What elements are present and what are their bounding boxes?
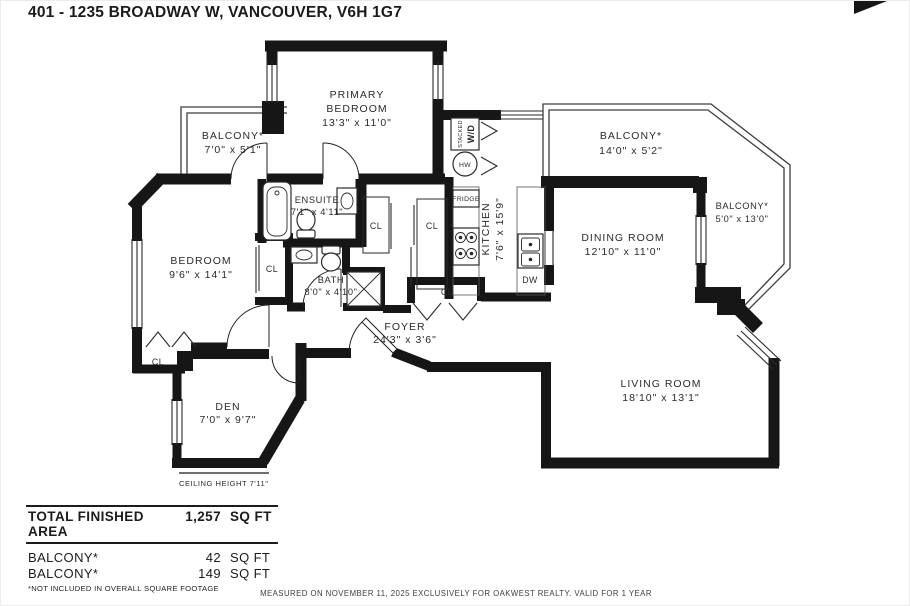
total-area-row: TOTAL FINISHED AREA 1,257 SQ FT [26, 505, 278, 544]
kitchen-dims: 7'6" x 15'9" [494, 197, 506, 261]
floorplan-page: 401 - 1235 BROADWAY W, VANCOUVER, V6H 1G… [0, 0, 910, 606]
balcony-tl-dims: 7'0" x 5'1" [205, 144, 262, 156]
living-room-dims: 18'10" x 13'1" [622, 392, 699, 404]
balcony-row-value: 42 [181, 550, 221, 565]
hot-water-label: HW [459, 162, 471, 169]
room-label-living-room: LIVING ROOM 18'10" x 13'1" [620, 378, 701, 404]
page-title: 401 - 1235 BROADWAY W, VANCOUVER, V6H 1G… [28, 4, 402, 22]
bath-sink-fixture [291, 247, 317, 263]
foyer-name: FOYER [384, 321, 425, 333]
total-area-unit: SQ FT [221, 509, 276, 524]
bath-dims: 8'0" x 4'10" [304, 287, 357, 297]
room-label-primary-bedroom: PRIMARY BEDROOM 13'3" x 11'0" [322, 89, 392, 129]
room-label-bedroom: BEDROOM 9'6" x 14'1" [169, 255, 233, 281]
room-label-balcony-top-right: BALCONY* 14'0" x 5'2" [599, 130, 663, 157]
room-label-balcony-top-left: BALCONY* 7'0" x 5'1" [202, 130, 264, 156]
primary-bedroom-name2: BEDROOM [326, 103, 387, 115]
balcony-row-unit: SQ FT [221, 550, 276, 565]
living-room-name: LIVING ROOM [620, 378, 701, 390]
bedroom-closet-label: CL [266, 264, 278, 274]
den-dims: 7'0" x 9'7" [200, 414, 257, 426]
room-label-ensuite: ENSUITE 7'1" x 4'11" [291, 195, 343, 217]
room-label-foyer: FOYER 24'3" x 3'6" [373, 321, 437, 346]
balcony-r-name: BALCONY* [716, 201, 769, 211]
room-label-kitchen: KITCHEN 7'6" x 15'9" [480, 197, 506, 261]
den-name: DEN [215, 401, 240, 413]
measurement-disclaimer: MEASURED ON NOVEMBER 11, 2025 EXCLUSIVEL… [1, 589, 910, 598]
den-closet-label: CL [152, 357, 164, 367]
balcony-row-label: BALCONY* [28, 566, 181, 581]
fridge-label: FRIDGE [452, 196, 480, 203]
wd-stacked-label: STACKED [458, 120, 464, 147]
bath-toilet-fixture [322, 246, 341, 271]
bath-name: BATH [318, 275, 345, 285]
balcony-row-value: 149 [181, 566, 221, 581]
room-label-balcony-right: BALCONY* 5'0" x 13'0" [715, 201, 768, 224]
dining-room-name: DINING ROOM [581, 232, 664, 244]
kitchen-name: KITCHEN [480, 202, 492, 255]
balcony-area-row: BALCONY* 42 SQ FT [26, 550, 278, 565]
bedroom-name: BEDROOM [170, 255, 231, 267]
balcony-tl-name: BALCONY* [202, 130, 264, 142]
balcony-area-row: BALCONY* 149 SQ FT [26, 566, 278, 581]
balcony-row-label: BALCONY* [28, 550, 181, 565]
balcony-tr-dims: 14'0" x 5'2" [599, 145, 663, 157]
closet-door-lines [146, 122, 497, 347]
total-area-label: TOTAL FINISHED AREA [28, 509, 181, 539]
total-area-value: 1,257 [181, 509, 221, 524]
balcony-r-dims: 5'0" x 13'0" [715, 214, 768, 224]
hall-closet-a-label: CL [370, 221, 382, 231]
ensuite-dims: 7'1" x 4'11" [291, 207, 343, 217]
ensuite-name: ENSUITE [295, 195, 340, 205]
balcony-row-unit: SQ FT [221, 566, 276, 581]
ceiling-height-label: CEILING HEIGHT 7'11" [179, 479, 268, 488]
area-summary: TOTAL FINISHED AREA 1,257 SQ FT BALCONY*… [26, 505, 278, 593]
primary-bedroom-name1: PRIMARY [330, 89, 385, 101]
dishwasher-fixture [518, 234, 543, 268]
wd-label: W/D [466, 125, 476, 143]
ceiling-height-note: CEILING HEIGHT 7'11" [179, 473, 269, 488]
room-label-dining-room: DINING ROOM 12'10" x 11'0" [581, 232, 664, 258]
primary-bedroom-dims: 13'3" x 11'0" [322, 117, 392, 129]
dining-room-dims: 12'10" x 11'0" [585, 246, 662, 258]
stove-fixture [453, 228, 479, 265]
foyer-dims: 24'3" x 3'6" [373, 334, 437, 346]
balcony-tr-name: BALCONY* [600, 130, 662, 142]
hall-closet-b-label: CL [426, 221, 438, 231]
foyer-closet-label: CL [441, 287, 453, 297]
room-label-den: DEN 7'0" x 9'7" [200, 401, 257, 426]
corner-mark [854, 1, 887, 14]
dishwasher-label: DW [522, 275, 538, 285]
bedroom-dims: 9'6" x 14'1" [169, 269, 233, 281]
bathtub-fixture [263, 182, 291, 240]
